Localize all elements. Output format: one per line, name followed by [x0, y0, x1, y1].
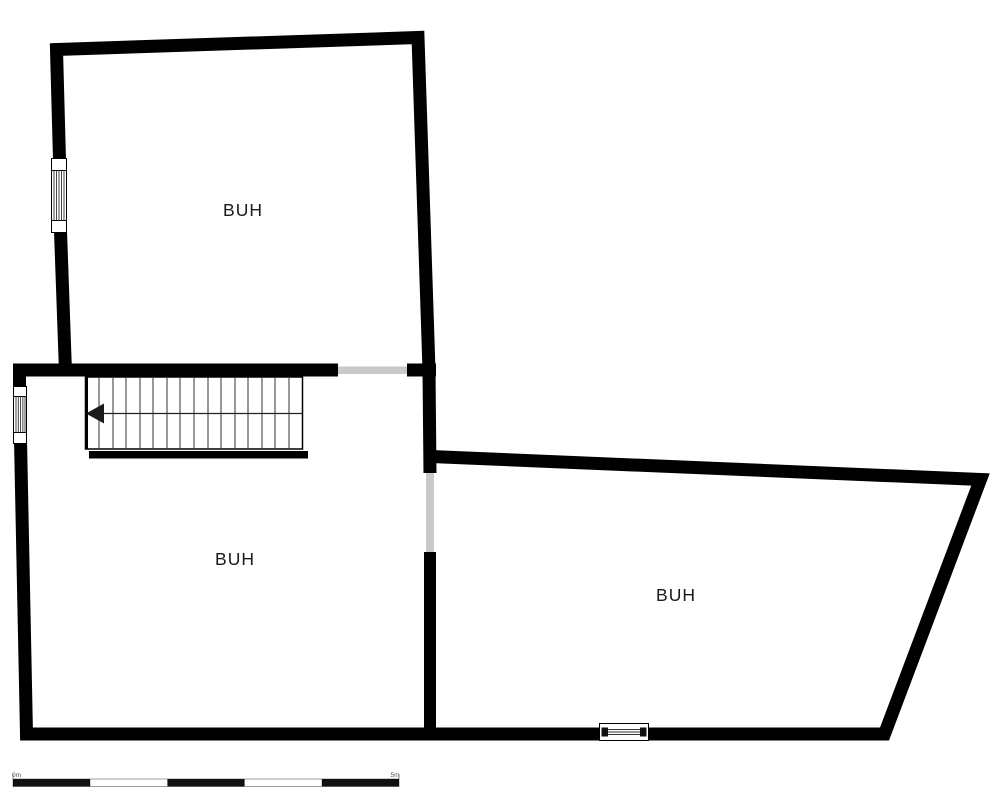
room-label-upper: BUH: [223, 200, 263, 220]
scale-bar-start-label: 0m: [12, 772, 21, 779]
door-opening-center-wall: [424, 473, 437, 552]
scale-bar-end-label: 5m: [390, 772, 399, 779]
window-frame-end: [640, 728, 647, 737]
window-upper-left-wall: [52, 159, 67, 233]
window-middle-left-wall: [14, 387, 27, 444]
scale-bar-segment: [167, 779, 244, 787]
door-opening-leaf: [338, 367, 407, 375]
window-frame-end: [602, 728, 609, 737]
floor-plan: BUH BUH BUH 0m 5m: [0, 0, 1000, 800]
scale-bar-segment: [13, 779, 90, 787]
staircase-lower-edge: [89, 451, 308, 459]
upper-room-left-wall-lower: [61, 231, 66, 372]
door-opening-middle-top: [338, 364, 407, 377]
window-bottom-wall: [600, 724, 649, 741]
door-opening-leaf: [426, 473, 434, 552]
scale-bar-segment: [322, 779, 399, 787]
staircase: [86, 377, 309, 459]
room-label-lower-right: BUH: [656, 585, 696, 605]
room-label-lower-left: BUH: [215, 549, 255, 569]
